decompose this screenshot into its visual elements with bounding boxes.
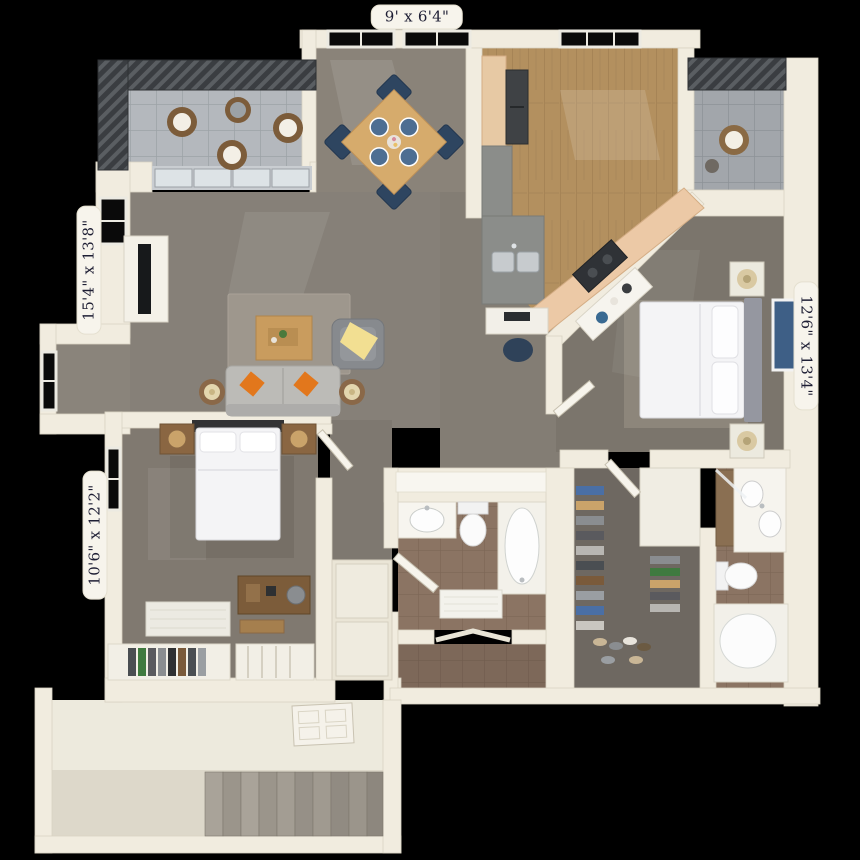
dining-window [404,31,470,47]
dining-window [328,31,394,47]
coffee-table [256,316,312,360]
bedroom-window [107,448,120,510]
patio-chair [719,125,749,155]
dimension-label-top: 9' x 6'4" [371,5,463,30]
stairs [205,772,383,836]
dimension-label-left-lower: 10'6" x 12'2" [83,470,108,599]
front-door [292,703,354,746]
bathroom-sink [398,502,456,538]
dimension-label-left-upper: 15'4" x 13'8" [77,205,102,334]
nightstand [160,424,194,454]
side-table-lamp [339,379,365,405]
bed [196,428,280,540]
double-sink-vanity [734,468,786,552]
nightstand [730,424,764,458]
refrigerator [506,70,528,144]
bathtub [498,502,546,594]
hall-closet [332,560,392,680]
tv-console [124,236,168,322]
patio-chair [273,113,303,143]
nightstand [282,424,316,454]
toilet [458,502,488,546]
toilet [716,562,757,590]
dimension-label-right: 12'6" x 13'4" [794,281,819,410]
bed [640,298,762,422]
closet-cabinet [640,468,700,546]
bath-mat [440,590,502,618]
armchair [332,319,384,369]
headboard [744,298,762,422]
dresser [238,576,310,614]
patio-chair [217,140,247,170]
floor-plan-canvas: 9' x 6'4" 15'4" x 13'8" 10'6" x 12'2" 12… [0,0,860,860]
closet-clothes [108,644,230,680]
kitchen-cabinets [482,56,506,148]
bay-window [42,352,56,410]
vanity-cabinet [716,470,734,546]
floor-plan [0,0,860,860]
tray [240,620,284,633]
kitchen-window [560,31,640,47]
wall-art [773,300,795,370]
bathtub [714,604,788,682]
nightstand [730,262,764,296]
kitchen-counter [482,146,512,218]
closet-shelves [236,644,314,680]
living-window [100,198,126,244]
tv [138,244,151,314]
side-table-lamp [199,379,225,405]
desk-chair [503,338,533,362]
floor-mats [146,602,230,636]
patio-table [225,97,251,123]
monitor [504,312,530,321]
sofa [226,366,340,416]
patio-chair [167,107,197,137]
patio-side-table [705,159,719,173]
